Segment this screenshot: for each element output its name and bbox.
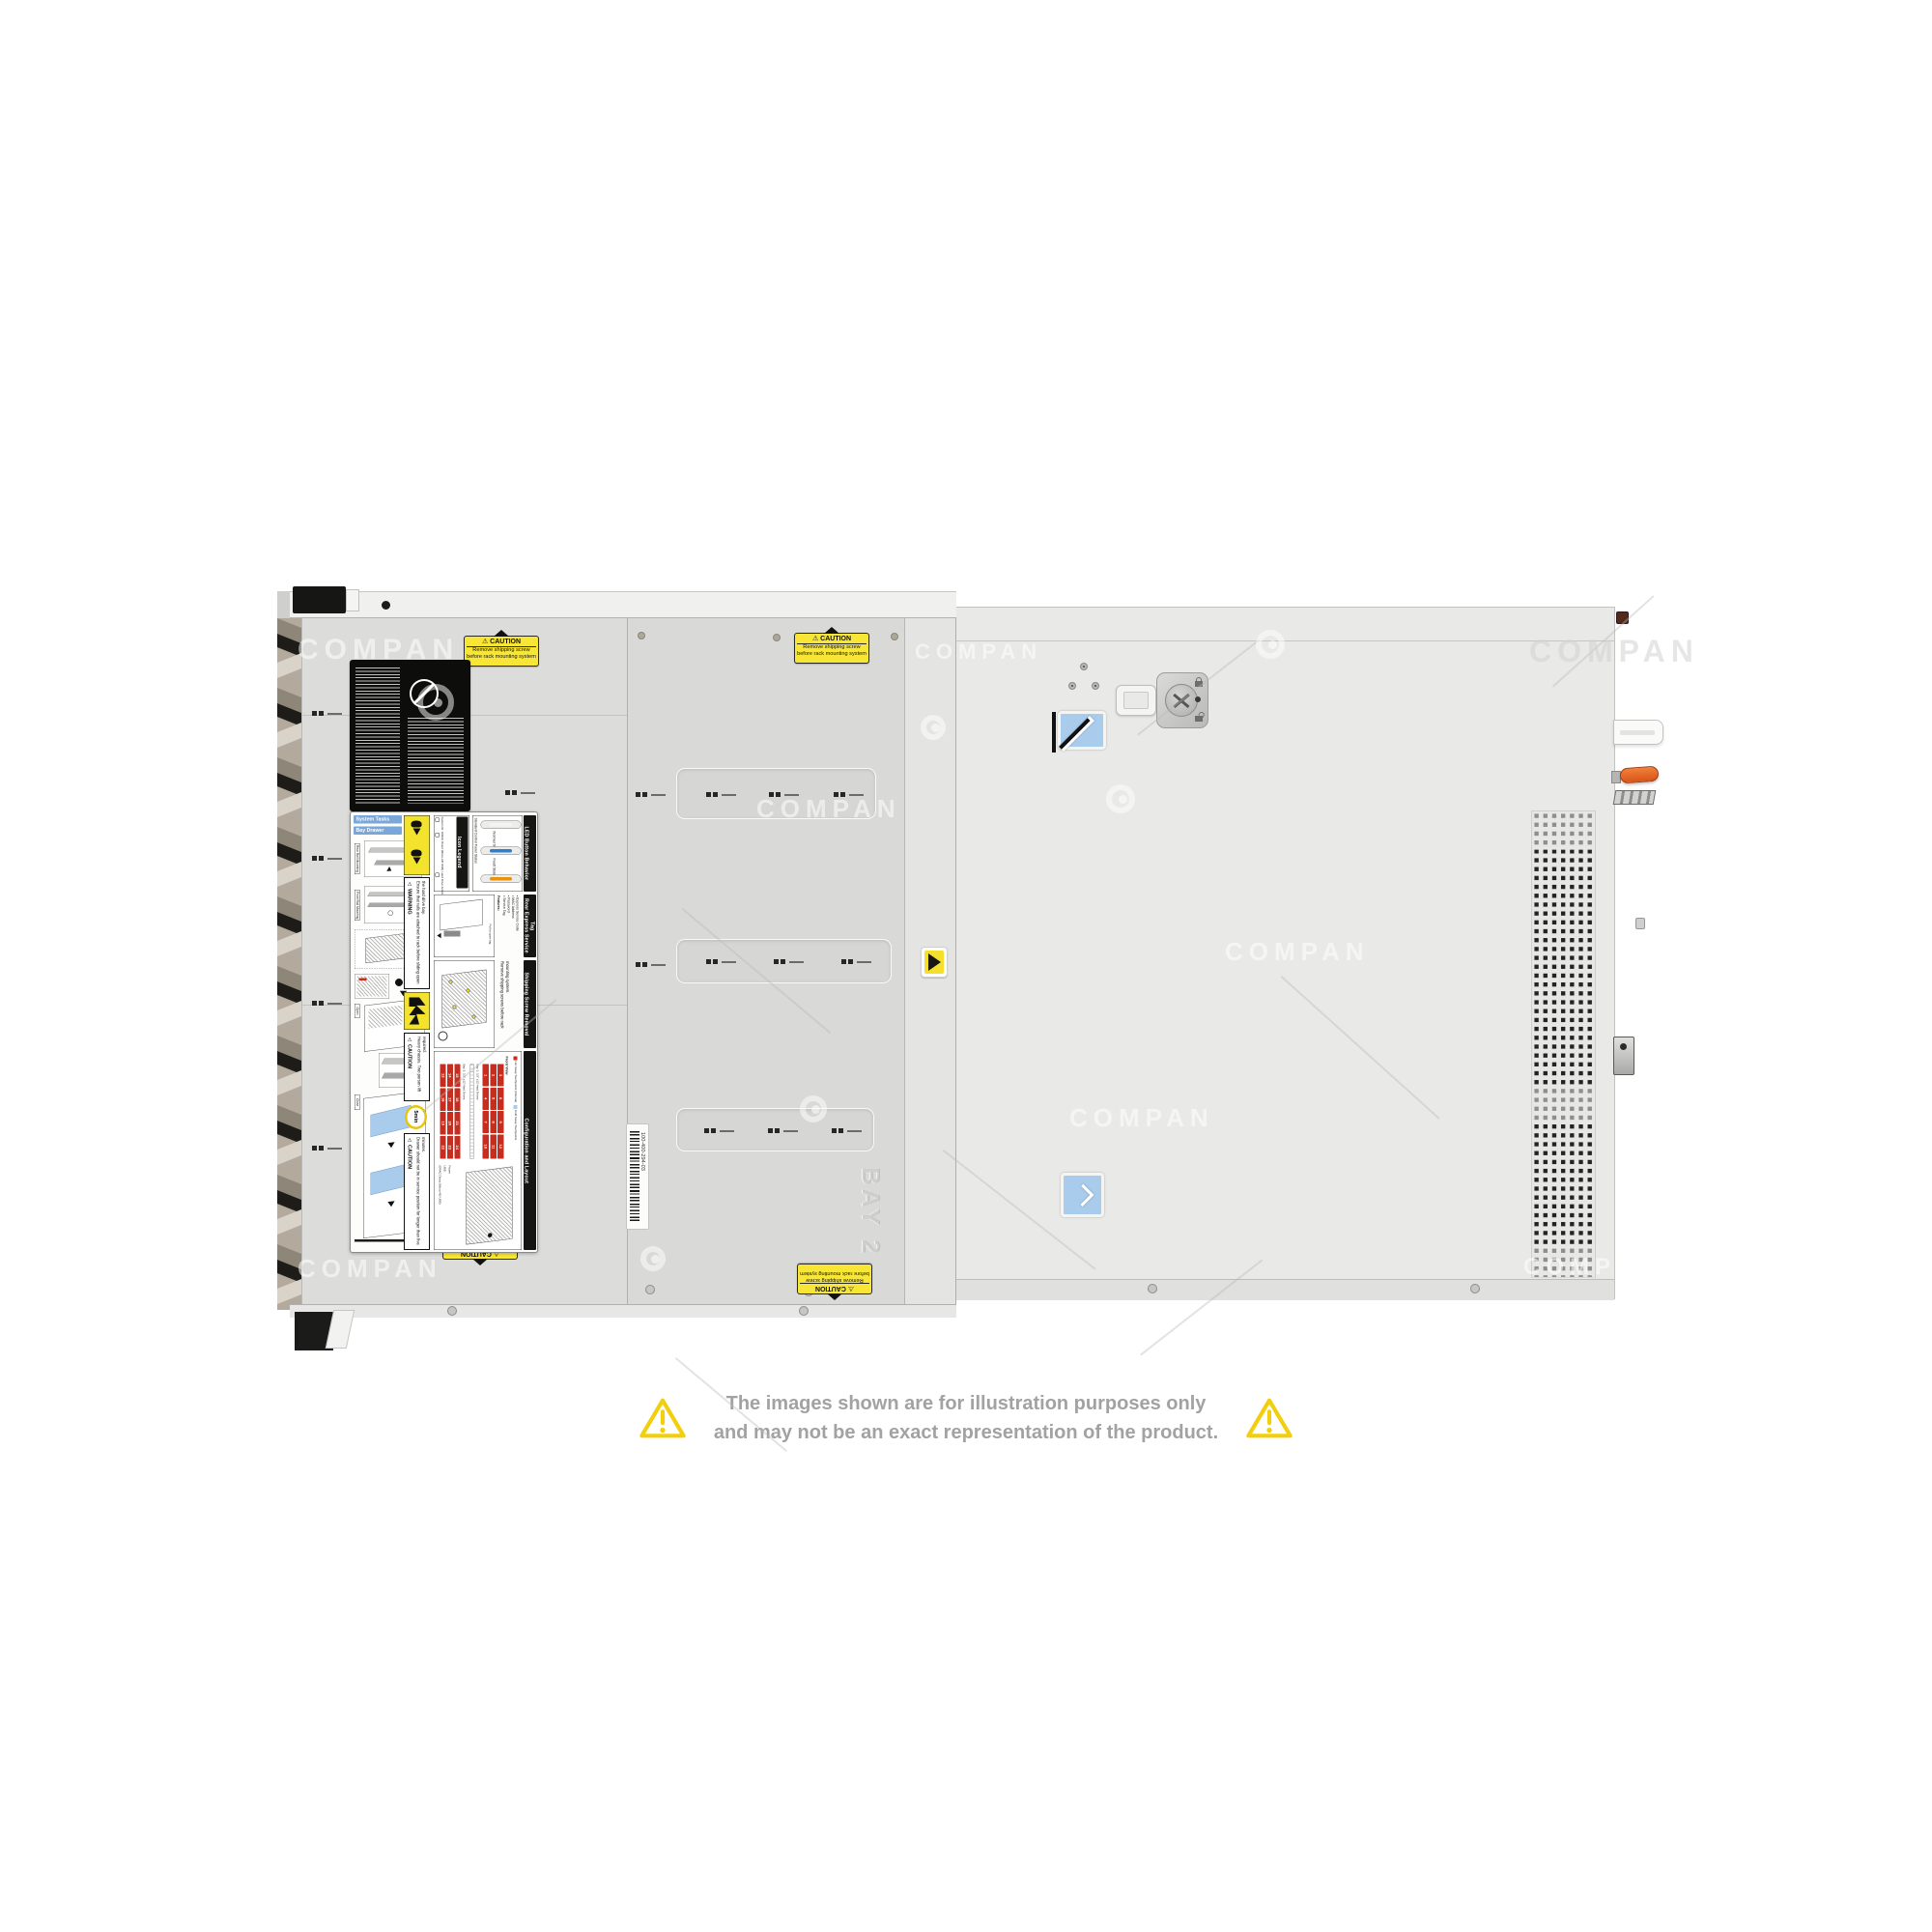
vent-slot bbox=[312, 1146, 343, 1151]
front-bezel-latch-strip bbox=[277, 618, 301, 1310]
vent-slot bbox=[505, 790, 536, 796]
caution-title: ⚠ CAUTION bbox=[800, 1283, 869, 1293]
drive-slot-cell: 20 bbox=[447, 1112, 453, 1135]
release-handle[interactable] bbox=[1619, 766, 1659, 784]
vent-slot bbox=[706, 959, 737, 965]
caution-text: Drawer should not be in service position… bbox=[415, 1137, 426, 1248]
section-header: Configuration and Layout bbox=[524, 1051, 536, 1250]
feature-item: Service Tag bbox=[502, 895, 506, 956]
caution-line: Remove shipping screw bbox=[800, 1276, 869, 1283]
caution-line: Remove shipping screw bbox=[467, 647, 536, 654]
drive-slot-cell: 6 bbox=[497, 1088, 504, 1110]
led-bar bbox=[481, 847, 522, 856]
cover-bottom-band bbox=[956, 1279, 1614, 1300]
port-label: iDRAC Direct (Micro-AB USB) bbox=[439, 1166, 441, 1246]
drive-slot-cell: 11 bbox=[490, 1134, 497, 1158]
icon-legend-items: System ID iDRAC Direct (Micro-AB USB) Ha… bbox=[436, 817, 456, 890]
close-tag: Close bbox=[355, 1094, 360, 1110]
vent-slot bbox=[774, 959, 805, 965]
screw-hole bbox=[773, 634, 781, 641]
caution-line: before rack mounting system bbox=[797, 651, 867, 658]
screw bbox=[1148, 1284, 1157, 1293]
feature-item: Express Service Code bbox=[516, 895, 520, 956]
port-label: USB bbox=[443, 1166, 446, 1246]
latch-clip bbox=[1613, 790, 1657, 805]
drive-slot-cell: 4 bbox=[483, 1088, 490, 1110]
caution-title: ⚠ CAUTION bbox=[407, 1037, 413, 1099]
barcode-text: 100-400-294-03 bbox=[639, 1132, 645, 1171]
vent-dimple-row bbox=[1532, 811, 1595, 850]
vent-slot bbox=[312, 856, 343, 862]
crush-hazard-box bbox=[404, 992, 430, 1030]
vent-slot bbox=[832, 1128, 863, 1134]
vent-slot bbox=[834, 792, 865, 798]
front-view-label: Front View bbox=[505, 1057, 510, 1115]
section-header: Icon Legend bbox=[457, 817, 469, 889]
drive-slot-cell: 22 bbox=[440, 1136, 446, 1159]
disclaimer-text: The images shown are for illustration pu… bbox=[714, 1389, 1218, 1447]
warning-title: ⚠ WARNING bbox=[407, 881, 413, 987]
pinch-hazard-strip bbox=[404, 815, 430, 875]
pointer-triangle-icon bbox=[472, 1259, 488, 1265]
drawer-front-sketch bbox=[467, 1167, 513, 1245]
legend-hot: Hot Swap Touchpoints (Internal) bbox=[514, 1057, 518, 1103]
regulatory-compliance-label bbox=[350, 660, 470, 811]
legend-glyph-icon bbox=[436, 872, 440, 877]
drive-slot-cell: 24 bbox=[454, 1136, 460, 1159]
no-disc-icon bbox=[410, 679, 439, 708]
feature-item: MAC Address bbox=[511, 895, 515, 956]
screw bbox=[645, 1285, 655, 1294]
fine-print-column bbox=[355, 668, 400, 804]
port-label: Power bbox=[448, 1166, 451, 1246]
legend-glyph-icon bbox=[436, 818, 440, 823]
drive-slot-cell: 7 bbox=[483, 1111, 490, 1133]
legend-text: Cold Swap Touchpoints bbox=[514, 1110, 517, 1140]
caution-drawer-box: ⚠ CAUTION Drawer should not be in servic… bbox=[404, 1133, 430, 1250]
lock-detent bbox=[1195, 696, 1201, 702]
led-bar bbox=[481, 821, 522, 830]
drive-slot-cell: 10 bbox=[483, 1134, 490, 1158]
drive-slot-cell: 21 bbox=[454, 1112, 460, 1135]
service-instruction-label: System Tasks Bay Drawer Operation Rear R… bbox=[350, 811, 538, 1253]
vent-slot bbox=[312, 1001, 343, 1007]
rail-mounting-tag: Rear Rail Mounting bbox=[355, 843, 360, 874]
bay2-drive-grid: 13 1415161718192021222324 bbox=[440, 1065, 461, 1159]
warning-triangle-icon bbox=[1245, 1396, 1293, 1440]
fine-print-column bbox=[408, 718, 464, 804]
vent-slot bbox=[312, 711, 343, 717]
recessed-vent-panel bbox=[676, 1108, 874, 1151]
status-light-bar-sketch bbox=[470, 1065, 474, 1159]
caution-line: before rack mounting system bbox=[800, 1269, 869, 1276]
icon-legend-item: iDRAC Direct (Micro-AB USB) bbox=[436, 832, 456, 870]
vent-slot bbox=[768, 1128, 799, 1134]
pointer-triangle-icon bbox=[494, 630, 509, 637]
server-chassis-top-view: ⚠ CAUTION Remove shipping screw before r… bbox=[277, 580, 1657, 1352]
vent-slot bbox=[841, 959, 872, 965]
caution-title: ⚠ CAUTION bbox=[467, 638, 536, 647]
drive-slot-cell: 3 bbox=[497, 1065, 504, 1087]
hot-swap-square-icon bbox=[514, 1057, 518, 1061]
barcode-label: 100-400-294-03 bbox=[626, 1123, 649, 1230]
embossed-bay2-text: BAY 2 bbox=[856, 1167, 886, 1258]
configuration-section: Front View Hot Swap Touchpoints (Interna… bbox=[434, 1051, 522, 1250]
label-header: System Tasks bbox=[354, 815, 402, 824]
rail-mounting-tag: Front Rail Mounting bbox=[355, 890, 360, 921]
icon-legend-box: System ID iDRAC Direct (Micro-AB USB) Ha… bbox=[434, 815, 469, 892]
cover-seam bbox=[956, 640, 1614, 641]
main-top-cover bbox=[956, 607, 1615, 1299]
cover-slider-button[interactable] bbox=[1116, 685, 1156, 716]
vent-slot bbox=[706, 792, 737, 798]
recessed-vent-panel bbox=[676, 939, 892, 983]
rivet bbox=[1080, 663, 1088, 670]
vent-slot bbox=[636, 792, 667, 798]
icon-legend-item: System ID bbox=[436, 817, 456, 831]
label-header: Bay Drawer Operation bbox=[354, 827, 402, 836]
drive-slot-cell: 5 bbox=[490, 1088, 497, 1110]
pointer-triangle-icon bbox=[824, 627, 839, 634]
feature-item: Password bbox=[507, 895, 511, 956]
cold-swap-square-icon bbox=[514, 1105, 518, 1109]
drive-slot-cell: 23 bbox=[447, 1136, 453, 1159]
disclaimer: The images shown are for illustration pu… bbox=[541, 1389, 1391, 1447]
caution-sticker: ⚠ CAUTION Remove shipping screw before r… bbox=[464, 636, 539, 667]
led-subtitle: Standard Control Panel Status bbox=[474, 818, 478, 891]
screw-hole bbox=[638, 632, 645, 639]
crush-hazard-icon bbox=[410, 998, 426, 1025]
caution-title: ⚠ CAUTION bbox=[407, 1137, 413, 1248]
pull-tag-text: Pull to open tag bbox=[489, 924, 492, 955]
disclaimer-line2: and may not be an exact representation o… bbox=[714, 1418, 1218, 1447]
pinch-hazard-icon bbox=[411, 819, 424, 838]
drive-slot-cell: 8 bbox=[490, 1111, 497, 1133]
screw bbox=[1470, 1284, 1480, 1293]
drive-slot-cell: 1 bbox=[483, 1065, 490, 1087]
vent-slot bbox=[704, 1128, 735, 1134]
rear-tag-features: Features: Service Tag PasswordMAC Addres… bbox=[497, 895, 522, 956]
drive-slot-cell: 12 bbox=[497, 1134, 504, 1158]
screw bbox=[799, 1306, 809, 1316]
recessed-vent-panel bbox=[676, 768, 876, 819]
rivet bbox=[1068, 682, 1076, 690]
side-latch[interactable] bbox=[1613, 1037, 1634, 1075]
rear-tag-pictogram: Pull to open tag bbox=[434, 895, 495, 957]
cooling-vent-grid bbox=[1531, 810, 1596, 1278]
legend-label: System ID bbox=[440, 817, 443, 831]
product-photo-canvas: ⚠ CAUTION Remove shipping screw before r… bbox=[0, 0, 1932, 1932]
bay1-drive-grid: 1 23456789101112 bbox=[483, 1065, 504, 1159]
rack-ear-latch bbox=[346, 589, 359, 611]
caution-heavy-box: ⚠ CAUTION Heavy chassis. Two person lift… bbox=[404, 1033, 430, 1101]
vent-dimple-row bbox=[1532, 1244, 1595, 1279]
front-edge-lip bbox=[277, 591, 290, 618]
legend-text: Hot Swap Touchpoints (Internal) bbox=[514, 1062, 517, 1103]
drive-slot-cell: 14 bbox=[447, 1065, 453, 1088]
warning-text: Ensure that rails are attached to rack b… bbox=[415, 881, 426, 987]
step-marker bbox=[395, 979, 403, 986]
open-tag: Open bbox=[355, 1004, 360, 1018]
pinch-warning-sticker bbox=[921, 947, 948, 978]
side-nub bbox=[1635, 918, 1645, 929]
legend-glyph-icon bbox=[436, 833, 440, 838]
features-title: Features: bbox=[497, 895, 500, 953]
icon-legend-item: Hard Drive Activity bbox=[436, 871, 456, 895]
section-header: Shipping Screw Removal bbox=[524, 960, 536, 1048]
five-min-text: 5min bbox=[413, 1111, 419, 1123]
caution-text: Heavy chassis. Two person lift required. bbox=[416, 1037, 427, 1099]
rivet bbox=[1092, 682, 1099, 690]
drive-slot-cell: 13 bbox=[440, 1065, 446, 1088]
service-tag-pull-tab[interactable] bbox=[1613, 720, 1663, 745]
pointer-triangle-icon bbox=[827, 1293, 842, 1300]
drive-slot-cell: 2 bbox=[490, 1065, 497, 1087]
blue-release-touchpoint[interactable] bbox=[1058, 711, 1106, 750]
barcode-stripes bbox=[630, 1131, 639, 1222]
drive-slot-cell: 19 bbox=[440, 1112, 446, 1135]
blue-release-touchpoint[interactable] bbox=[1061, 1173, 1104, 1217]
drive-slot-cell: 9 bbox=[497, 1111, 504, 1133]
warning-triangle-icon bbox=[928, 953, 941, 971]
config-legend: Hot Swap Touchpoints (Internal) Cold Swa… bbox=[514, 1057, 518, 1153]
legend-cold: Cold Swap Touchpoints bbox=[514, 1105, 518, 1140]
screw bbox=[447, 1306, 457, 1316]
caution-title: ⚠ CAUTION bbox=[797, 635, 867, 644]
caution-sticker: ⚠ CAUTION Remove shipping screw before r… bbox=[794, 633, 869, 664]
screw-hole bbox=[382, 601, 390, 610]
disclaimer-line1: The images shown are for illustration pu… bbox=[714, 1389, 1218, 1418]
led-bar bbox=[481, 875, 522, 884]
warning-box: ⚠ WARNING Ensure that rails are attached… bbox=[404, 877, 430, 989]
led-segment bbox=[490, 849, 512, 853]
shipping-screw-pictogram bbox=[434, 960, 495, 1048]
rack-ear-top-left bbox=[293, 586, 346, 613]
section-header: Rear Express Service Tag bbox=[524, 895, 536, 957]
bay1-caption: Bay 1: 3.5" x12 Hard Drives bbox=[476, 1065, 479, 1159]
port-labels: iDRAC Direct (Micro-AB USB) USBPower bbox=[439, 1166, 451, 1246]
vent-slot bbox=[769, 792, 800, 798]
drive-slot-cell: 17 bbox=[447, 1088, 453, 1111]
warning-triangle-icon bbox=[639, 1396, 687, 1440]
drive-slot-cell: 18 bbox=[454, 1088, 460, 1111]
led-caption: Fault State bbox=[493, 859, 497, 876]
vent-slot bbox=[636, 962, 667, 968]
led-segment bbox=[490, 877, 512, 881]
led-segment bbox=[490, 823, 512, 827]
shipping-screw-text: Remove shipping screws before rack mount… bbox=[497, 961, 522, 1047]
vent-dimple-row bbox=[1532, 1088, 1595, 1124]
caution-sticker: ⚠ CAUTION Remove shipping screw before r… bbox=[797, 1264, 872, 1294]
led-behavior-box: Standard Control Panel Status Normal Sta… bbox=[472, 815, 523, 892]
caution-line: Remove shipping screw bbox=[797, 644, 867, 651]
screw-hole bbox=[891, 633, 898, 640]
features-list: Service Tag PasswordMAC AddressExpress S… bbox=[502, 895, 519, 956]
legend-label: iDRAC Direct (Micro-AB USB) bbox=[440, 832, 443, 870]
caution-line: before rack mounting system bbox=[467, 654, 536, 661]
shipping-text: Remove shipping screws before rack mount… bbox=[499, 961, 510, 1046]
legend-label: Hard Drive Activity bbox=[440, 871, 443, 895]
lock-open-icon bbox=[1195, 716, 1203, 722]
section-header: LED Button Behavior bbox=[524, 815, 536, 892]
pinch-hazard-icon bbox=[411, 848, 424, 867]
bottom-edge-rail bbox=[290, 1304, 956, 1318]
control-panel-pictogram bbox=[355, 974, 389, 999]
